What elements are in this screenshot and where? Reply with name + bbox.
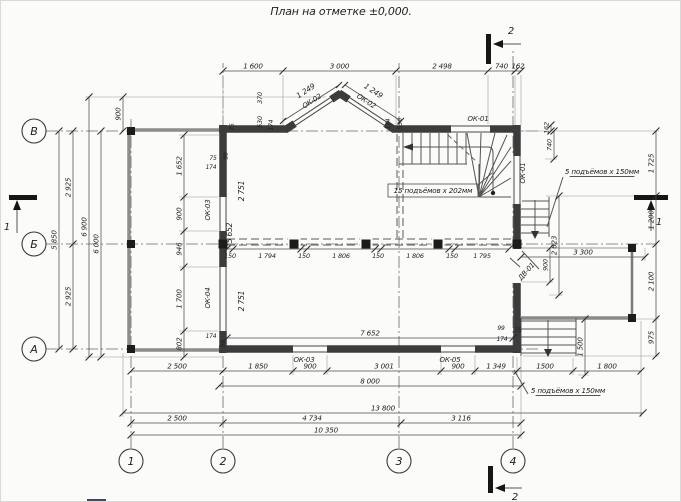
dim-label: 2 100	[647, 271, 656, 291]
axis-bubble-label: 4	[510, 455, 517, 468]
dim-label: 1 794	[258, 252, 276, 260]
axis-bubble-label: А	[29, 343, 38, 356]
dim-label: ОК-05	[440, 356, 462, 364]
dim-label: 802	[175, 337, 184, 351]
axis-bubble-label: 2	[220, 455, 227, 468]
dim-label: 1 349	[486, 362, 506, 371]
axis-bubble-label: 1	[128, 455, 135, 468]
axis-bubble-2: 2	[211, 449, 235, 473]
dim-label: ОК-03	[294, 356, 315, 364]
dim-label: 1 850	[248, 362, 268, 371]
dim-label: 5 652	[225, 222, 234, 243]
dim-label: 5 850	[50, 230, 59, 250]
stair-direction-arrow-icon	[403, 144, 413, 151]
dim-label: 975	[647, 330, 656, 344]
dim-label: 6 900	[80, 217, 89, 237]
window-ok01-top	[451, 124, 490, 134]
dim-label: 75	[514, 327, 522, 334]
dim-label: 2 623	[550, 235, 559, 255]
dimension-chains: 1 6003 0002 4987401622 5001 8509003 0019…	[50, 62, 660, 439]
stair-note: 15 подъёмов x 202мм	[394, 186, 473, 195]
dim-label: 3 116	[451, 414, 471, 423]
dim-label: 150	[446, 252, 458, 260]
dim-label: 2 925	[64, 177, 73, 197]
dim-label: 530	[256, 116, 264, 128]
dim-label: 3 000	[330, 62, 350, 71]
dim-label: 946	[175, 242, 184, 256]
axis-bubble-4: 4	[501, 449, 525, 473]
dim-label: 1 725	[647, 153, 656, 173]
dim-label: 1 700	[175, 289, 184, 309]
dim-label: 13 800	[371, 404, 396, 413]
dim-label: 75	[209, 155, 217, 162]
dim-label: 2 751	[237, 181, 246, 201]
dim-label: 174	[206, 164, 217, 171]
dim-label: 8 000	[360, 377, 380, 386]
axis-bubble-label: 3	[396, 455, 403, 468]
dim-label: 99	[497, 325, 505, 332]
dim-label: ОК-04	[204, 288, 212, 309]
dim-label: 174	[497, 336, 508, 343]
axis-bubble-label: В	[30, 125, 38, 138]
dim-label: 150	[298, 252, 310, 260]
dim-label: 900	[542, 259, 550, 271]
dim-label: 2 498	[432, 62, 452, 71]
dim-label: 1 795	[473, 252, 491, 260]
dim-label: 1 200	[647, 210, 656, 230]
section-flag-1-left: 1	[4, 195, 37, 233]
window-ok04-left	[218, 267, 228, 331]
dim-label: 1 806	[406, 252, 424, 260]
dim-label: 530	[396, 118, 404, 130]
drawing-title: План на отметке ±0,000.	[270, 5, 411, 18]
dim-label: 1 652	[175, 156, 184, 176]
window-ok05-bottom	[441, 344, 475, 354]
dim-label: 2 500	[167, 362, 187, 371]
window-ok03-bottom	[293, 344, 327, 354]
dim-label: 1 806	[332, 252, 350, 260]
step-arrow-down-icon	[531, 231, 539, 239]
dim-label: ОК-01	[519, 163, 527, 184]
stair-note: 5 подъёмов x 150мм	[565, 167, 640, 176]
dim-label: 2 751	[237, 291, 246, 311]
dim-label: 900	[175, 207, 184, 221]
floor-plan-canvas: 1 1 2 2 1 6003 0002 4987401622 5001 8509…	[1, 1, 681, 502]
dim-label: 6 000	[92, 234, 101, 254]
dim-label: 3 001	[374, 362, 394, 371]
dim-label: 99	[223, 152, 230, 160]
section-label: 2	[512, 492, 518, 502]
windows	[218, 95, 539, 354]
dim-label: 1 800	[597, 362, 617, 371]
axis-bubble-В: В	[22, 119, 46, 143]
dim-label: 3 300	[573, 248, 593, 257]
dim-label: 162	[543, 122, 551, 134]
dim-label: ОК-03	[204, 200, 212, 221]
section-flag-2-top: 2	[486, 26, 521, 64]
dim-label: 150	[372, 252, 384, 260]
section-label: 1	[656, 217, 662, 228]
stair-walkline-start-dot	[491, 191, 495, 195]
floor-plan-drawing: 1 1 2 2 1 6003 0002 4987401622 5001 8509…	[0, 0, 681, 502]
dim-label: 740	[546, 139, 554, 151]
dim-label: 174	[268, 119, 275, 130]
dim-label: ОК-01	[468, 115, 489, 123]
dim-label: 2 500	[167, 414, 187, 423]
dim-label: 162	[511, 62, 525, 71]
section-label: 2	[508, 26, 514, 37]
axis-bubble-3: 3	[387, 449, 411, 473]
dim-label: 99	[220, 340, 227, 348]
axis-bubble-label: Б	[30, 238, 38, 251]
dim-label: 150	[224, 252, 236, 260]
dim-label: 1 500	[576, 337, 585, 357]
section-label: 1	[4, 222, 10, 233]
axis-bubble-А: А	[22, 337, 46, 361]
dim-label: 75	[229, 123, 236, 131]
dim-label: 7 652	[360, 329, 380, 338]
dim-label: 1 600	[243, 62, 263, 71]
stair-note: 5 подъёмов x 150мм	[531, 386, 606, 395]
dim-label: 370	[256, 92, 264, 104]
dim-label: 2 925	[64, 286, 73, 306]
dim-label: 1500	[536, 362, 554, 371]
dim-label: 10 350	[314, 426, 339, 435]
dim-label: 740	[495, 62, 509, 71]
axis-bubbles: ВБА1234	[22, 119, 525, 473]
dim-label: 174	[206, 333, 217, 340]
dim-label: 174	[385, 118, 392, 129]
dim-label: 900	[114, 107, 123, 121]
axis-bubble-1: 1	[119, 449, 143, 473]
dim-label: 4 734	[302, 414, 322, 423]
axis-bubble-Б: Б	[22, 232, 46, 256]
